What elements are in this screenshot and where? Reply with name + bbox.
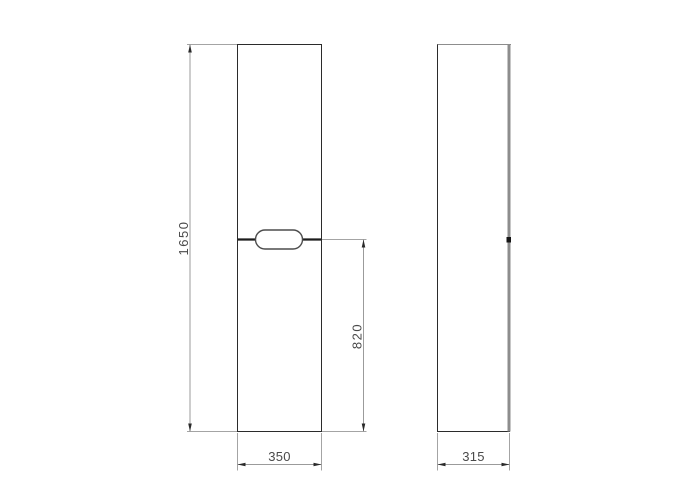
handle-oval bbox=[256, 230, 303, 249]
handle-side-profile bbox=[507, 237, 512, 243]
arrow-left bbox=[238, 463, 246, 467]
lower-section-dimension-label: 820 bbox=[350, 323, 365, 349]
width-dimension: 350 bbox=[238, 433, 322, 471]
depth-dimension-label: 315 bbox=[462, 449, 485, 464]
lower-section-dimension: 820 bbox=[322, 240, 367, 432]
front-view bbox=[238, 45, 322, 432]
side-view-body bbox=[438, 45, 509, 431]
arrow-up bbox=[362, 240, 366, 248]
arrow-up bbox=[188, 45, 192, 53]
drawing-canvas: 1650 820 350 315 bbox=[0, 0, 700, 500]
width-dimension-label: 350 bbox=[268, 449, 291, 464]
arrow-down bbox=[188, 424, 192, 432]
arrow-down bbox=[362, 424, 366, 432]
arrow-left bbox=[438, 463, 446, 467]
side-view bbox=[438, 44, 512, 432]
depth-dimension: 315 bbox=[438, 433, 510, 471]
arrow-right bbox=[314, 463, 322, 467]
height-dimension-label: 1650 bbox=[176, 221, 191, 256]
cabinet-technical-drawing: 1650 820 350 315 bbox=[0, 0, 700, 500]
arrow-right bbox=[502, 463, 510, 467]
